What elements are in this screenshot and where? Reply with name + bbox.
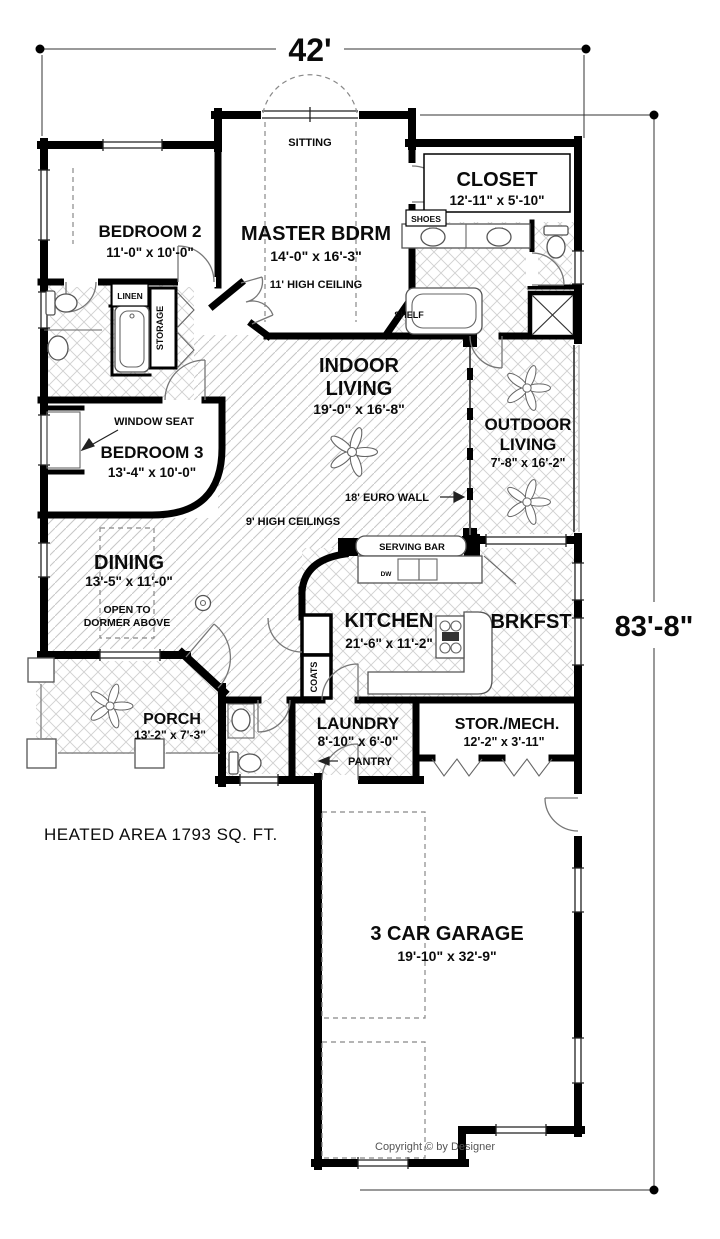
dining-label: DINING [94,552,164,574]
kitchen-label: KITCHEN [345,610,434,632]
door-gap-bedroom2 [178,277,216,287]
bedroom3-label: BEDROOM 3 [101,443,204,462]
master-ceiling-note: 11' HIGH CEILING [270,279,362,291]
linen-label: LINEN [117,291,143,301]
copyright-label: Copyright © by Designer [375,1141,495,1153]
dimension-width: 42' [288,32,331,68]
window-garage-right-2 [572,1038,584,1083]
porch-size: 13'-2" x 7'-3" [134,728,206,742]
laundry-size: 8'-10" x 6'-0" [318,734,399,749]
window-bedroom2-left [38,170,50,240]
coats-label: COATS [309,662,319,693]
dining-note-2: DORMER ABOVE [84,617,171,629]
shoes-label: SHOES [411,214,441,224]
brkfst-label: BRKFST [490,611,571,633]
window-garage-right-1 [572,868,584,912]
laundry-label: LAUNDRY [317,714,400,733]
outdoor-living-label-1: OUTDOOR [485,415,572,434]
window-brkfst-right-2 [572,618,584,665]
indoor-living-size: 19'-0" x 16'-8" [313,401,405,417]
dimension-depth: 83'-8" [615,611,694,643]
window-bedroom2-top [103,139,162,151]
window-dining-left [38,543,50,577]
storage-label: STORAGE [155,306,165,350]
door-gap-wc [526,252,538,286]
pantry-label: PANTRY [348,756,393,768]
window-garage-bottom-left [358,1157,408,1169]
stor-mech-size: 12'-2" x 3'-11" [463,735,544,749]
door-gap-garage-service [572,794,584,836]
dining-light [196,596,211,611]
outdoor-living-size: 7'-8" x 16'-2" [491,456,566,470]
euro-wall-label: 18' EURO WALL [345,492,429,504]
window-brkfst-right-1 [572,563,584,600]
dining-size: 13'-5" x 11'-0" [85,574,173,589]
garage-size: 19'-10" x 32'-9" [397,948,496,964]
heated-area-label: HEATED AREA 1793 SQ. FT. [44,825,278,844]
master-label: MASTER BDRM [241,223,391,245]
toilet-powder [229,752,261,774]
floor-plan-svg: 42' 83'-8" SITTING BEDROOM 2 11'-0" x 10… [0,0,720,1234]
garage-label: 3 CAR GARAGE [370,923,523,945]
closet-size: 12'-11" x 5'-10" [449,193,544,208]
door-gap-laundry-rear [322,775,358,785]
door-gap-bath [64,277,98,287]
shelf-label: SHELF [394,310,424,320]
stor-mech-label: STOR./MECH. [455,716,560,733]
bathtub-hall [115,306,149,372]
bedroom3-size: 13'-4" x 10'-0" [108,465,196,480]
sitting-label: SITTING [288,137,331,149]
porch-label: PORCH [143,711,201,728]
kitchen-size: 21'-6" x 11'-2" [345,636,433,651]
window-windowseat-left [38,415,50,465]
dining-note-1: OPEN TO [103,604,150,616]
bedroom2-label: BEDROOM 2 [99,222,202,241]
window-bath-right [572,251,584,284]
door-gap-closet [407,163,417,204]
bedroom2-size: 11'-0" x 10'-0" [106,245,194,260]
vanity-double-sink [402,224,530,248]
window-garage-bottom-right [496,1124,546,1136]
master-size: 14'-0" x 16'-3" [270,248,362,264]
outdoor-living-label-2: LIVING [500,435,557,454]
high-ceilings-label: 9' HIGH CEILINGS [246,516,340,528]
serving-bar-label: SERVING BAR [379,542,445,553]
indoor-living-label-2: LIVING [326,378,393,400]
dw-label: DW [381,571,393,578]
window-powder-bottom [240,774,278,786]
closet-label: CLOSET [456,169,537,191]
indoor-living-label-1: INDOOR [319,355,400,377]
window-seat-label: WINDOW SEAT [114,416,194,428]
window-dining-bottom [100,649,160,661]
